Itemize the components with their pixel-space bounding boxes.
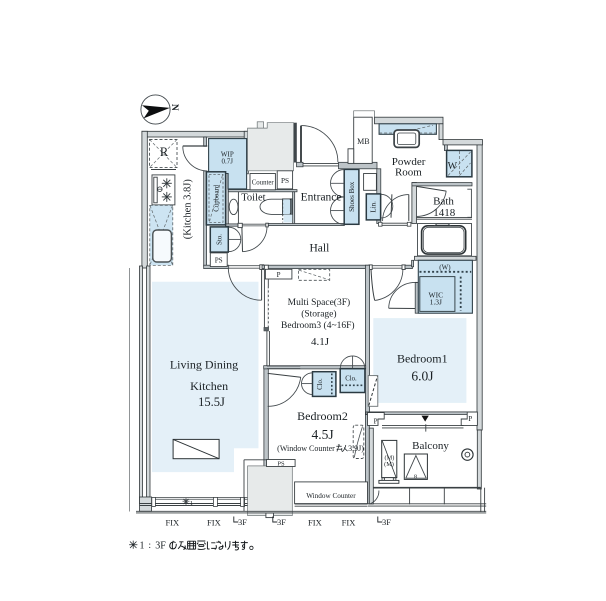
svg-text:PS: PS [215,257,223,265]
svg-text:3F: 3F [155,541,166,552]
svg-text:Kitchen: Kitchen [190,379,228,393]
svg-text:Multi Space(3F): Multi Space(3F) [288,297,351,308]
svg-text:PS: PS [277,461,285,468]
svg-text:Bedroom2: Bedroom2 [297,409,348,423]
svg-text:Clo.: Clo. [317,378,324,390]
svg-text::: : [149,540,152,550]
svg-text:6.0J: 6.0J [411,368,433,383]
svg-text:N: N [169,104,179,111]
svg-text:Living Dining: Living Dining [170,358,238,372]
svg-text:(Kitchen 3.8J): (Kitchen 3.8J) [183,179,194,240]
svg-text:Entrance: Entrance [301,191,342,203]
svg-text:FIX: FIX [342,517,356,527]
svg-text:1: 1 [190,500,193,507]
svg-text:R: R [160,145,169,159]
svg-text:15.5J: 15.5J [198,395,225,409]
svg-text:3F: 3F [382,517,391,527]
svg-text:Bath: Bath [433,196,454,208]
svg-text:Shoes Box: Shoes Box [348,181,356,212]
svg-text:Clo.: Clo. [345,375,357,382]
svg-text:Room: Room [395,166,422,178]
svg-text:Hall: Hall [309,242,329,254]
svg-text:(Storage): (Storage) [301,309,336,320]
svg-text:Bedroom3 (4~16F): Bedroom3 (4~16F) [281,320,354,331]
svg-text:W: W [448,161,458,172]
svg-text:Balcony: Balcony [412,440,449,452]
svg-text:3F: 3F [277,517,286,527]
svg-text:8: 8 [414,475,417,481]
svg-text:0.7J: 0.7J [222,157,234,165]
svg-text:FIX: FIX [165,517,179,527]
svg-text:3F: 3F [238,517,247,527]
svg-text:FIX: FIX [207,517,221,527]
svg-text:1: 1 [140,541,145,552]
svg-text:MB: MB [357,137,369,146]
svg-text:1418: 1418 [433,207,456,219]
svg-text:Window Counter: Window Counter [306,492,356,500]
svg-text:4.5J: 4.5J [312,427,334,442]
svg-text:P: P [277,271,281,279]
svg-text:P: P [468,415,472,423]
svg-text:(M): (M) [384,461,394,468]
svg-text:P: P [374,418,378,426]
svg-text:FIX: FIX [308,517,322,527]
svg-text:Counter: Counter [252,179,275,186]
svg-text:3.9J): 3.9J) [348,444,364,453]
svg-text:Cupboard: Cupboard [213,184,220,211]
svg-text:4.1J: 4.1J [311,336,330,348]
svg-text:(Window Counter: (Window Counter [277,444,335,453]
svg-text:1.3J: 1.3J [430,298,442,307]
svg-text:(W): (W) [439,263,451,271]
svg-text:PS: PS [281,177,289,185]
svg-text:Toilet: Toilet [241,192,265,203]
svg-text:Sto.: Sto. [216,234,224,245]
svg-text:Bedroom1: Bedroom1 [397,351,448,365]
svg-text:Lin.: Lin. [370,201,378,213]
